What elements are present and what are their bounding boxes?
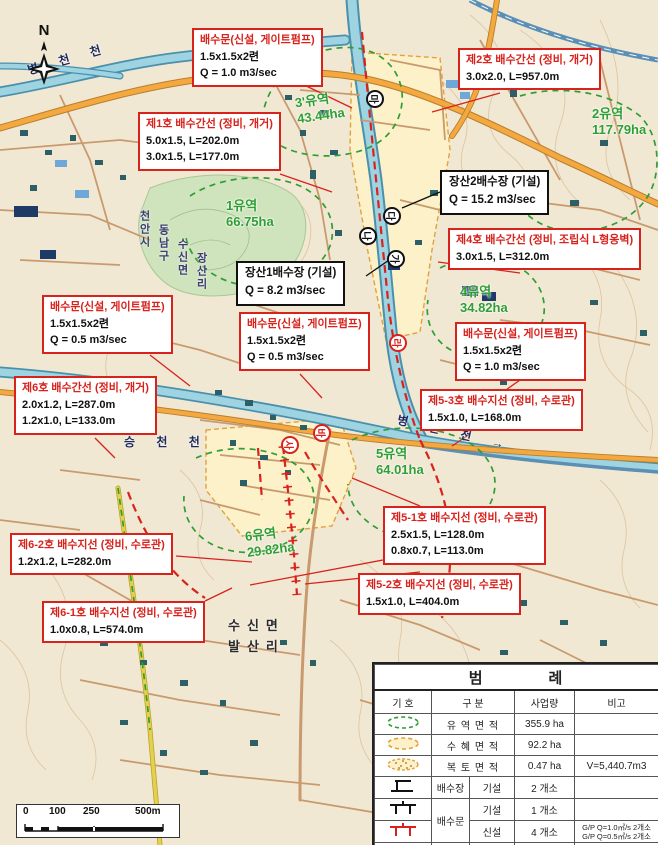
compass-n-label: N xyxy=(24,22,64,39)
map-marker: 라 xyxy=(389,334,407,352)
map-marker: 마 xyxy=(366,90,384,108)
callout-main-line-4: 제4호 배수간선 (정비, 조립식 L형옹벽) 3.0x1.5, L=312.0… xyxy=(448,228,641,270)
basin-label-5: 5유역64.01ha xyxy=(376,446,424,479)
scale-label-250: 250 xyxy=(83,806,100,817)
station-jangsan-2: 장산2배수장 (기설) Q = 15.2 m3/sec xyxy=(440,170,549,215)
callout-gate-center: 배수문(신설, 게이트펌프) 1.5x1.5x2련 Q = 0.5 m3/sec xyxy=(239,312,370,371)
compass-rose-icon xyxy=(24,39,64,85)
callout-branch-6-2: 제6-2호 배수지선 (정비, 수로관) 1.2x1.2, L=282.0m xyxy=(10,533,173,575)
village-label: 수신면 발산리 xyxy=(228,616,285,658)
drainage-plan-map: N 병 천 천 승 천 천 병 천 천 → 천안시 동남구 수신면 장산리 수신… xyxy=(0,0,658,845)
legend-header-remark: 비고 xyxy=(575,690,658,714)
gate-existing-icon xyxy=(383,800,423,816)
callout-main-line-2: 제2호 배수간선 (정비, 개거) 3.0x2.0, L=957.0m xyxy=(458,48,601,90)
scale-label-500: 500m xyxy=(135,806,161,817)
callout-gate-west: 배수문(신설, 게이트펌프) 1.5x1.5x2련 Q = 0.5 m3/sec xyxy=(42,295,173,354)
legend-table: 범 례 기 호 구 분 사업량 비고 유 역 면 적 355.9 ha 수 혜 … xyxy=(372,662,658,845)
basin-label-2: 2유역117.79ha xyxy=(592,106,646,139)
scale-label-100: 100 xyxy=(49,806,66,817)
callout-branch-5-3: 제5-3호 배수지선 (정비, 수로관) 1.5x1.0, L=168.0m xyxy=(420,389,583,431)
legend-header-category: 구 분 xyxy=(432,690,515,714)
legend-header-quantity: 사업량 xyxy=(515,690,575,714)
map-marker: 바 xyxy=(313,424,331,442)
benefit-area-icon xyxy=(383,736,423,751)
map-marker: 나 xyxy=(359,227,377,245)
legend-row-fill-area: 복 토 면 적 0.47 ha V=5,440.7m3 xyxy=(375,756,658,777)
pump-station-icon xyxy=(383,778,423,794)
callout-branch-5-1: 제5-1호 배수지선 (정비, 수로관) 2.5x1.5, L=128.0m 0… xyxy=(383,506,546,565)
legend-row-gate-new: 신설 4 개소 G/P Q=1.0㎥/s 2개소 G/P Q=0.5㎥/s 2개… xyxy=(375,821,658,843)
admin-area-label: 천안시 동남구 수신면 장산리 xyxy=(136,210,209,291)
basin-label-3: 3'유역43.44ha xyxy=(294,89,346,128)
legend-gate-new-remark: G/P Q=1.0㎥/s 2개소 G/P Q=0.5㎥/s 2개소 xyxy=(575,821,658,843)
station-jangsan-1: 장산1배수장 (기설) Q = 8.2 m3/sec xyxy=(236,261,345,306)
legend-row-pump-station: 배수장 기설 2 개소 xyxy=(375,777,658,799)
callout-branch-6-1: 제6-1호 배수지선 (정비, 수로관) 1.0x0.8, L=574.0m xyxy=(42,601,205,643)
callout-branch-5-2: 제5-2호 배수지선 (정비, 수로관) 1.5x1.0, L=404.0m xyxy=(358,573,521,615)
basin-label-6: 6유역29.82ha xyxy=(244,523,295,561)
basin-label-1: 1유역66.75ha xyxy=(226,198,274,231)
river-label-seungcheon: 승 천 천 xyxy=(124,433,209,450)
fill-area-icon xyxy=(383,757,423,772)
basin-label-4: 4유역34.82ha xyxy=(460,284,508,317)
basin-area-icon xyxy=(383,715,423,730)
map-marker: 다 xyxy=(383,207,401,225)
map-marker: 가 xyxy=(387,250,405,268)
scale-bar: 0 100 250 500m xyxy=(16,804,180,838)
callout-gate-east: 배수문(신설, 게이트펌프) 1.5x1.5x2련 Q = 1.0 m3/sec xyxy=(455,322,586,381)
legend-header-symbol: 기 호 xyxy=(375,690,432,714)
legend-row-benefit-area: 수 혜 면 적 92.2 ha xyxy=(375,735,658,756)
callout-main-line-6: 제6호 배수간선 (정비, 개거) 2.0x1.2, L=287.0m 1.2x… xyxy=(14,376,157,435)
compass: N xyxy=(24,22,64,90)
map-marker: 사 xyxy=(281,436,299,454)
scale-label-0: 0 xyxy=(23,806,29,817)
scale-bar-graphic xyxy=(17,819,177,835)
legend-row-basin-area: 유 역 면 적 355.9 ha xyxy=(375,714,658,735)
callout-gate-north: 배수문(신설, 게이트펌프) 1.5x1.5x2련 Q = 1.0 m3/sec xyxy=(192,28,323,87)
gate-new-icon xyxy=(383,822,423,838)
callout-main-line-1: 제1호 배수간선 (정비, 개거) 5.0x1.5, L=202.0m 3.0x… xyxy=(138,112,281,171)
legend-row-gate-existing: 배수문 기설 1 개소 xyxy=(375,799,658,821)
legend-title: 범 례 xyxy=(375,665,658,691)
